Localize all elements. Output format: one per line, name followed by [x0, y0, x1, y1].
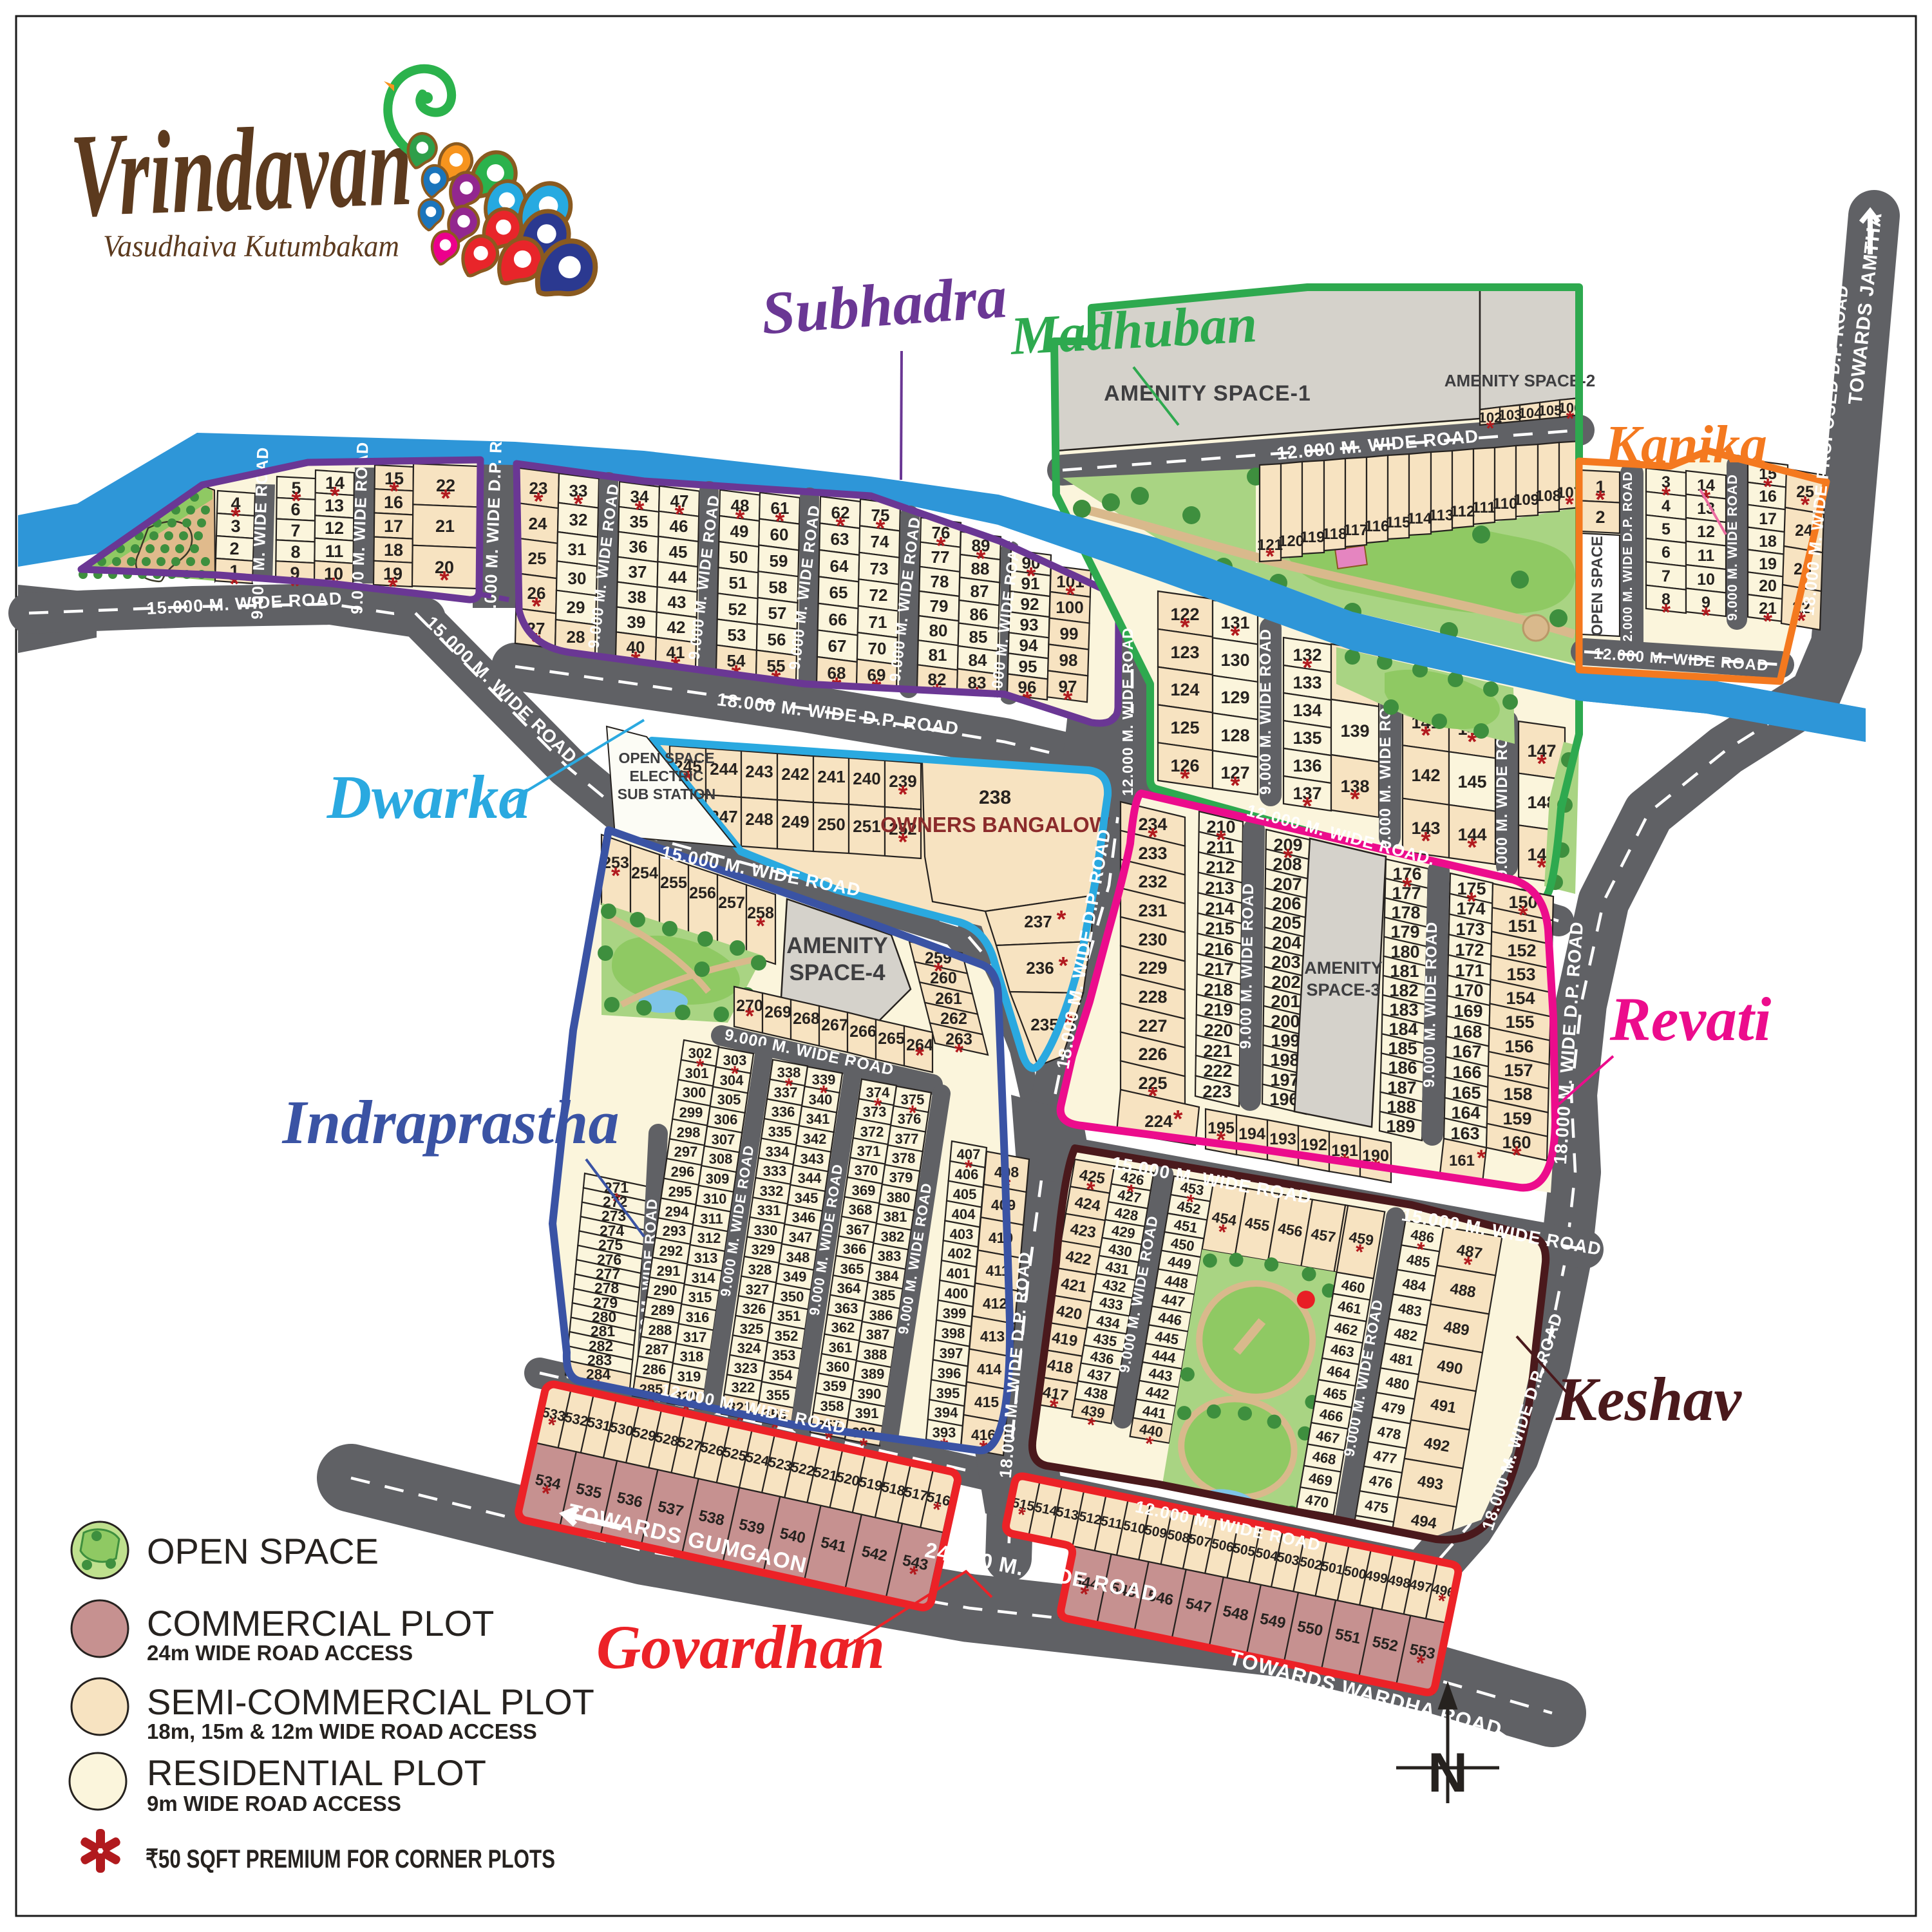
svg-text:Indraprastha: Indraprastha [282, 1088, 620, 1157]
svg-text:365: 365 [840, 1261, 864, 1277]
svg-text:242: 242 [781, 764, 809, 784]
svg-text:63: 63 [831, 529, 849, 549]
svg-text:*: * [1566, 407, 1575, 430]
svg-text:315: 315 [688, 1289, 712, 1305]
svg-text:*: * [1486, 417, 1495, 440]
svg-text:157: 157 [1504, 1061, 1533, 1080]
svg-text:219: 219 [1204, 1000, 1233, 1019]
svg-text:60: 60 [770, 525, 789, 544]
svg-text:243: 243 [745, 762, 773, 781]
svg-text:119: 119 [1300, 529, 1325, 546]
svg-text:153: 153 [1506, 965, 1535, 984]
svg-text:241: 241 [817, 767, 845, 786]
svg-text:25: 25 [528, 549, 547, 568]
svg-text:*: * [1421, 722, 1431, 750]
svg-text:7: 7 [290, 521, 300, 540]
svg-text:362: 362 [831, 1320, 855, 1336]
svg-text:309: 309 [706, 1171, 730, 1187]
svg-text:260: 260 [930, 969, 957, 987]
svg-text:376: 376 [898, 1111, 922, 1127]
svg-text:255: 255 [660, 874, 687, 892]
svg-text:180: 180 [1390, 942, 1419, 961]
svg-text:RESIDENTIAL PLOT: RESIDENTIAL PLOT [147, 1752, 486, 1793]
svg-text:232: 232 [1138, 872, 1167, 891]
svg-text:262: 262 [940, 1010, 967, 1028]
svg-text:28: 28 [567, 627, 585, 647]
svg-text:299: 299 [679, 1104, 703, 1121]
svg-text:*: * [1350, 786, 1360, 813]
svg-text:*: * [1173, 1106, 1183, 1133]
svg-text:215: 215 [1205, 919, 1234, 938]
svg-text:Vasudhaiva Kutumbakam: Vasudhaiva Kutumbakam [103, 229, 399, 263]
svg-text:171: 171 [1455, 961, 1484, 980]
svg-text:Keshav: Keshav [1555, 1365, 1742, 1434]
svg-text:403: 403 [950, 1226, 974, 1242]
svg-text:*: * [756, 913, 765, 939]
svg-text:207: 207 [1273, 875, 1302, 894]
svg-text:387: 387 [866, 1327, 890, 1343]
svg-text:159: 159 [1502, 1109, 1531, 1128]
svg-text:181: 181 [1390, 961, 1419, 981]
svg-text:306: 306 [714, 1112, 738, 1128]
svg-text:236: 236 [1026, 958, 1054, 978]
svg-text:167: 167 [1452, 1042, 1481, 1061]
svg-text:N: N [1428, 1742, 1468, 1804]
svg-text:364: 364 [837, 1280, 861, 1296]
svg-text:230: 230 [1138, 930, 1167, 949]
svg-text:331: 331 [757, 1202, 781, 1218]
svg-text:328: 328 [748, 1262, 772, 1278]
svg-text:314: 314 [692, 1270, 715, 1286]
svg-text:319: 319 [677, 1368, 701, 1385]
svg-text:168: 168 [1453, 1022, 1482, 1041]
svg-text:20: 20 [1759, 577, 1777, 595]
svg-text:316: 316 [686, 1309, 710, 1325]
svg-text:*: * [440, 485, 451, 513]
svg-text:64: 64 [830, 556, 849, 576]
svg-text:6: 6 [290, 500, 300, 519]
svg-text:*: * [1063, 687, 1073, 714]
svg-text:186: 186 [1388, 1058, 1417, 1077]
svg-text:358: 358 [820, 1398, 844, 1414]
svg-text:163: 163 [1450, 1124, 1479, 1143]
svg-text:179: 179 [1390, 922, 1419, 942]
svg-text:158: 158 [1503, 1084, 1532, 1104]
svg-text:94: 94 [1019, 636, 1038, 655]
svg-text:6: 6 [1662, 544, 1671, 562]
svg-text:386: 386 [869, 1307, 893, 1323]
svg-text:43: 43 [668, 592, 687, 612]
svg-text:19: 19 [1759, 555, 1777, 573]
svg-text:231: 231 [1138, 901, 1167, 920]
svg-text:372: 372 [860, 1124, 884, 1140]
svg-text:398: 398 [942, 1325, 965, 1341]
svg-text:AMENITY: AMENITY [786, 933, 888, 958]
svg-text:177: 177 [1392, 884, 1421, 903]
svg-text:199: 199 [1271, 1031, 1300, 1050]
svg-text:379: 379 [889, 1170, 913, 1186]
svg-text:42: 42 [667, 618, 686, 637]
svg-text:*: * [954, 1039, 963, 1065]
svg-text:12: 12 [325, 518, 344, 538]
svg-text:12.000 M. WIDE D.P. ROAD: 12.000 M. WIDE D.P. ROAD [1621, 471, 1635, 649]
svg-text:384: 384 [875, 1268, 899, 1284]
svg-text:*: * [1265, 544, 1274, 569]
svg-text:335: 335 [768, 1124, 792, 1140]
svg-text:201: 201 [1271, 992, 1300, 1011]
svg-text:214: 214 [1205, 899, 1234, 918]
svg-text:324: 324 [737, 1340, 761, 1356]
svg-text:217: 217 [1204, 960, 1233, 979]
svg-text:395: 395 [936, 1385, 960, 1401]
svg-text:139: 139 [1340, 721, 1369, 741]
svg-text:16: 16 [1759, 488, 1777, 506]
svg-text:229: 229 [1138, 958, 1167, 978]
svg-text:52: 52 [728, 600, 747, 619]
svg-text:*: * [1701, 602, 1710, 629]
svg-text:39: 39 [627, 612, 646, 632]
svg-text:382: 382 [881, 1229, 905, 1245]
svg-text:99: 99 [1060, 624, 1079, 643]
svg-text:136: 136 [1293, 756, 1321, 775]
svg-text:385: 385 [872, 1287, 896, 1303]
svg-text:361: 361 [829, 1340, 853, 1356]
svg-text:287: 287 [645, 1341, 669, 1358]
svg-text:172: 172 [1455, 940, 1484, 960]
svg-text:*: * [534, 488, 544, 515]
svg-text:125: 125 [1170, 718, 1199, 737]
svg-text:35: 35 [630, 512, 649, 531]
svg-text:*: * [611, 862, 620, 889]
svg-text:351: 351 [777, 1308, 801, 1324]
svg-text:404: 404 [952, 1206, 976, 1222]
svg-text:333: 333 [763, 1163, 787, 1179]
svg-text:30: 30 [568, 569, 587, 588]
svg-text:330: 330 [754, 1222, 778, 1238]
svg-text:11: 11 [325, 542, 344, 561]
svg-text:AMENITY SPACE-1: AMENITY SPACE-1 [1104, 381, 1311, 406]
svg-text:390: 390 [858, 1386, 882, 1402]
svg-text:305: 305 [717, 1092, 741, 1108]
svg-text:95: 95 [1019, 657, 1037, 676]
svg-text:Revati: Revati [1609, 985, 1772, 1054]
svg-text:256: 256 [689, 884, 716, 902]
svg-text:74: 74 [871, 532, 889, 551]
svg-text:189: 189 [1386, 1117, 1415, 1136]
svg-text:254: 254 [631, 864, 658, 882]
svg-text:SUB STATION: SUB STATION [618, 786, 715, 802]
svg-text:142: 142 [1411, 766, 1440, 785]
svg-text:*: * [439, 567, 450, 594]
svg-text:342: 342 [803, 1131, 827, 1147]
svg-text:389: 389 [861, 1366, 885, 1382]
svg-text:388: 388 [864, 1347, 887, 1363]
svg-text:291: 291 [657, 1263, 681, 1279]
svg-text:293: 293 [663, 1223, 687, 1239]
svg-text:87: 87 [971, 582, 989, 601]
svg-text:5: 5 [1662, 520, 1671, 538]
svg-text:240: 240 [853, 769, 880, 788]
svg-text:249: 249 [781, 812, 809, 831]
svg-text:78: 78 [931, 572, 949, 591]
svg-text:154: 154 [1506, 989, 1535, 1008]
svg-text:73: 73 [870, 559, 889, 578]
svg-text:290: 290 [654, 1282, 677, 1298]
svg-text:318: 318 [680, 1349, 704, 1365]
svg-text:135: 135 [1293, 728, 1321, 748]
svg-text:345: 345 [795, 1190, 819, 1206]
svg-text:248: 248 [745, 810, 773, 829]
svg-text:292: 292 [659, 1243, 683, 1259]
svg-text:49: 49 [730, 522, 749, 541]
svg-text:391: 391 [855, 1405, 879, 1421]
svg-text:*: * [1477, 1146, 1486, 1171]
svg-text:67: 67 [828, 636, 847, 656]
svg-text:4: 4 [1662, 497, 1671, 515]
svg-text:128: 128 [1220, 726, 1249, 745]
svg-text:93: 93 [1020, 615, 1039, 634]
svg-text:31: 31 [568, 540, 587, 559]
svg-text:32: 32 [569, 510, 588, 529]
svg-text:SPACE-4: SPACE-4 [789, 960, 885, 985]
svg-text:221: 221 [1203, 1041, 1232, 1061]
svg-text:130: 130 [1220, 650, 1249, 670]
svg-text:9.000 M. WIDE ROAD: 9.000 M. WIDE ROAD [1237, 883, 1257, 1049]
svg-text:124: 124 [1170, 680, 1199, 699]
svg-text:81: 81 [929, 645, 947, 665]
svg-text:AMENITY: AMENITY [1304, 958, 1383, 978]
svg-text:24: 24 [529, 514, 547, 533]
svg-text:294: 294 [665, 1204, 689, 1220]
svg-text:288: 288 [649, 1322, 672, 1338]
svg-text:92: 92 [1021, 594, 1039, 614]
svg-text:298: 298 [677, 1124, 701, 1141]
svg-text:223: 223 [1202, 1082, 1231, 1101]
svg-text:369: 369 [852, 1182, 876, 1198]
svg-text:206: 206 [1272, 894, 1301, 913]
svg-text:267: 267 [821, 1016, 848, 1034]
svg-text:216: 216 [1204, 940, 1233, 959]
svg-text:133: 133 [1293, 673, 1321, 692]
svg-text:*: * [1217, 1126, 1226, 1153]
svg-text:265: 265 [878, 1030, 905, 1048]
svg-text:360: 360 [826, 1359, 850, 1375]
svg-text:226: 226 [1138, 1045, 1167, 1064]
svg-text:402: 402 [948, 1245, 972, 1262]
svg-text:296: 296 [671, 1164, 695, 1180]
svg-text:*: * [1230, 622, 1240, 650]
svg-text:*: * [1180, 765, 1190, 793]
svg-text:204: 204 [1272, 933, 1301, 952]
svg-text:222: 222 [1203, 1061, 1232, 1081]
svg-text:313: 313 [694, 1250, 718, 1266]
svg-text:56: 56 [768, 630, 786, 649]
svg-text:134: 134 [1293, 701, 1321, 720]
svg-text:88: 88 [971, 559, 990, 578]
svg-text:187: 187 [1387, 1078, 1416, 1097]
svg-text:SEMI-COMMERCIAL PLOT: SEMI-COMMERCIAL PLOT [147, 1681, 594, 1722]
svg-text:Dwarka: Dwarka [327, 762, 530, 831]
svg-text:98: 98 [1059, 650, 1078, 670]
svg-text:58: 58 [769, 578, 788, 597]
svg-text:312: 312 [697, 1230, 721, 1246]
svg-text:401: 401 [947, 1265, 971, 1282]
svg-text:18: 18 [384, 540, 403, 560]
svg-text:50: 50 [730, 547, 748, 567]
svg-text:323: 323 [734, 1360, 758, 1376]
svg-text:332: 332 [760, 1183, 784, 1199]
svg-text:366: 366 [843, 1241, 867, 1257]
svg-text:301: 301 [685, 1065, 709, 1081]
svg-text:57: 57 [768, 603, 787, 623]
svg-text:53: 53 [728, 625, 746, 645]
svg-text:178: 178 [1391, 903, 1420, 922]
svg-text:185: 185 [1388, 1039, 1417, 1058]
svg-text:266: 266 [849, 1023, 876, 1041]
svg-text:*: * [745, 1003, 754, 1029]
svg-text:24m WIDE ROAD ACCESS: 24m WIDE ROAD ACCESS [147, 1641, 413, 1665]
svg-text:129: 129 [1220, 688, 1249, 707]
svg-text:COMMERCIAL PLOT: COMMERCIAL PLOT [147, 1603, 494, 1643]
svg-text:100: 100 [1056, 598, 1083, 617]
svg-text:182: 182 [1389, 981, 1418, 1000]
svg-text:166: 166 [1452, 1063, 1481, 1082]
svg-text:84: 84 [969, 650, 987, 670]
svg-text:200: 200 [1271, 1012, 1300, 1031]
svg-text:349: 349 [783, 1269, 807, 1285]
svg-text:8: 8 [290, 542, 300, 562]
svg-text:269: 269 [764, 1003, 791, 1021]
svg-text:308: 308 [709, 1151, 733, 1167]
svg-text:250: 250 [817, 815, 845, 834]
svg-text:44: 44 [668, 567, 687, 587]
svg-text:184: 184 [1388, 1019, 1417, 1039]
svg-text:310: 310 [703, 1191, 727, 1207]
svg-text:213: 213 [1205, 878, 1234, 898]
svg-text:29: 29 [567, 598, 585, 617]
svg-text:188: 188 [1387, 1097, 1416, 1117]
svg-text:*: * [1059, 952, 1068, 980]
svg-text:406: 406 [955, 1166, 979, 1182]
svg-text:169: 169 [1454, 1001, 1482, 1021]
svg-text:9m WIDE ROAD ACCESS: 9m WIDE ROAD ACCESS [147, 1792, 401, 1815]
svg-text:17: 17 [1759, 510, 1777, 528]
svg-text:261: 261 [935, 990, 962, 1008]
svg-text:2: 2 [1595, 507, 1605, 527]
svg-text:2: 2 [229, 539, 239, 558]
svg-text:203: 203 [1271, 952, 1300, 972]
svg-text:18m, 15m & 12m WIDE ROAD ACCES: 18m, 15m & 12m WIDE ROAD ACCESS [147, 1719, 537, 1743]
svg-text:337: 337 [774, 1084, 798, 1101]
svg-text:51: 51 [729, 573, 748, 592]
svg-text:317: 317 [683, 1329, 707, 1345]
svg-text:237: 237 [1024, 912, 1052, 931]
svg-text:155: 155 [1505, 1012, 1534, 1032]
svg-text:OPEN SPACE: OPEN SPACE [618, 750, 714, 766]
svg-text:307: 307 [712, 1132, 735, 1148]
svg-text:380: 380 [887, 1189, 911, 1206]
svg-text:394: 394 [934, 1405, 958, 1421]
svg-text:227: 227 [1138, 1016, 1167, 1036]
svg-text:OPEN SPACE: OPEN SPACE [147, 1531, 379, 1571]
svg-text:322: 322 [732, 1379, 755, 1396]
svg-text:397: 397 [940, 1345, 963, 1361]
svg-text:45: 45 [669, 542, 688, 562]
svg-text:405: 405 [953, 1186, 977, 1202]
svg-text:18: 18 [1759, 533, 1777, 551]
svg-text:363: 363 [835, 1300, 858, 1316]
svg-text:233: 233 [1138, 844, 1167, 863]
svg-text:327: 327 [746, 1282, 770, 1298]
svg-text:80: 80 [929, 621, 948, 640]
svg-text:174: 174 [1456, 899, 1485, 918]
svg-text:71: 71 [869, 612, 887, 632]
svg-text:*: * [1565, 492, 1574, 517]
svg-text:251: 251 [853, 817, 880, 836]
svg-text:350: 350 [781, 1289, 804, 1305]
svg-text:59: 59 [770, 551, 788, 571]
svg-text:11: 11 [1698, 547, 1715, 565]
svg-text:36: 36 [629, 537, 648, 556]
svg-text:341: 341 [806, 1111, 830, 1127]
svg-text:65: 65 [829, 583, 848, 602]
svg-text:205: 205 [1272, 913, 1301, 933]
svg-text:325: 325 [740, 1321, 764, 1337]
svg-text:400: 400 [945, 1285, 969, 1302]
svg-text:12: 12 [1697, 523, 1715, 541]
svg-text:17: 17 [384, 516, 403, 536]
svg-text:Kanika: Kanika [1604, 415, 1767, 475]
svg-text:378: 378 [892, 1150, 916, 1166]
svg-text:SPACE-3: SPACE-3 [1306, 980, 1380, 999]
svg-text:165: 165 [1452, 1083, 1481, 1103]
svg-text:*: * [1230, 772, 1240, 800]
svg-text:381: 381 [884, 1209, 907, 1225]
svg-text:72: 72 [869, 585, 888, 605]
svg-text:37: 37 [629, 562, 647, 582]
svg-text:9.000 M. WIDE ROAD: 9.000 M. WIDE ROAD [1725, 474, 1740, 621]
svg-text:13: 13 [325, 496, 344, 515]
svg-text:347: 347 [789, 1229, 813, 1245]
svg-text:*: * [1057, 906, 1066, 933]
svg-text:123: 123 [1170, 643, 1199, 662]
svg-text:352: 352 [775, 1328, 799, 1344]
svg-text:183: 183 [1389, 1000, 1418, 1019]
svg-text:70: 70 [868, 639, 887, 658]
svg-text:*: * [915, 1042, 924, 1068]
svg-text:286: 286 [643, 1361, 667, 1378]
svg-text:383: 383 [878, 1248, 902, 1264]
svg-text:415: 415 [974, 1394, 999, 1410]
svg-text:161: 161 [1449, 1152, 1475, 1170]
svg-text:197: 197 [1270, 1070, 1299, 1090]
svg-text:170: 170 [1454, 981, 1483, 1000]
svg-text:46: 46 [670, 516, 688, 536]
svg-text:413: 413 [980, 1328, 1005, 1345]
svg-text:224: 224 [1144, 1112, 1173, 1131]
svg-text:208: 208 [1273, 855, 1302, 874]
svg-text:257: 257 [718, 894, 745, 912]
svg-text:192: 192 [1300, 1136, 1327, 1154]
svg-text:85: 85 [969, 627, 988, 647]
svg-text:10: 10 [1697, 571, 1715, 589]
svg-text:*: * [1537, 750, 1547, 778]
svg-text:198: 198 [1270, 1050, 1299, 1070]
svg-text:396: 396 [938, 1365, 961, 1381]
svg-text:*: * [1511, 1142, 1522, 1170]
svg-text:377: 377 [895, 1131, 919, 1147]
svg-text:297: 297 [674, 1144, 698, 1160]
